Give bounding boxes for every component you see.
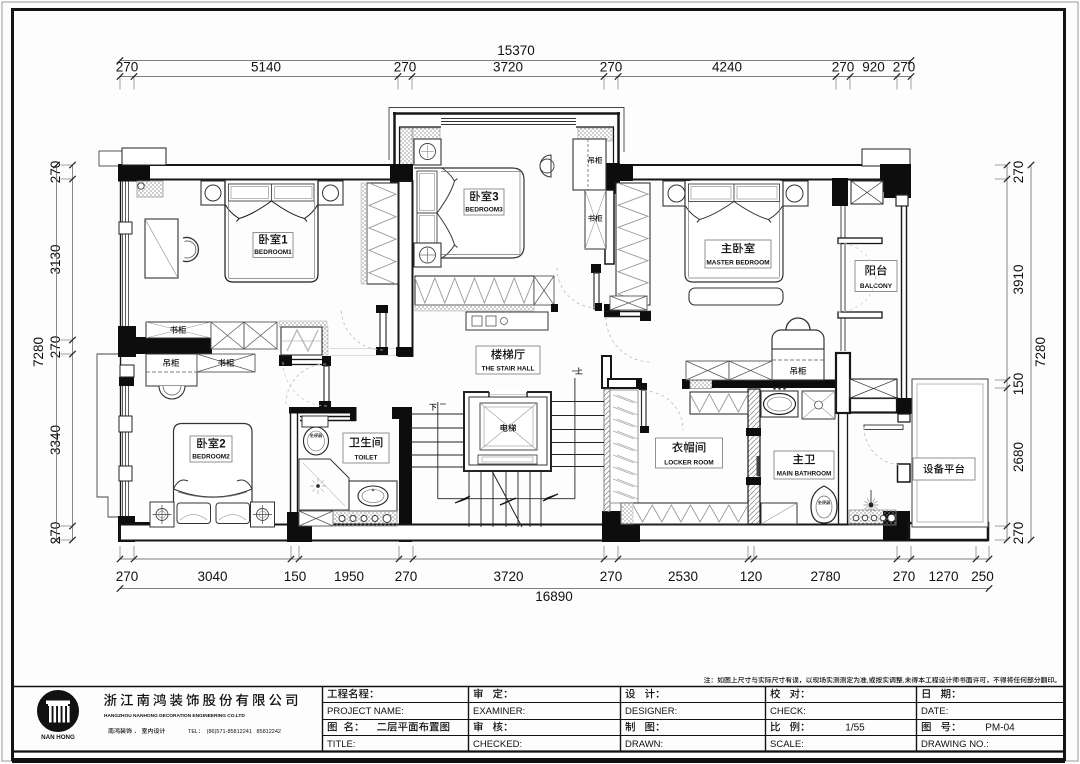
svg-text:150: 150 (1011, 373, 1026, 396)
svg-text:3910: 3910 (1011, 264, 1026, 294)
svg-text:TEL: TEL (188, 729, 198, 735)
svg-text:270: 270 (600, 60, 623, 75)
svg-text:250: 250 (971, 569, 994, 584)
svg-text:7280: 7280 (1033, 337, 1048, 367)
svg-text:270: 270 (893, 60, 916, 75)
svg-text:270: 270 (600, 569, 623, 584)
svg-text:270: 270 (1011, 522, 1026, 545)
svg-text:1950: 1950 (334, 569, 364, 584)
svg-text:270: 270 (116, 569, 139, 584)
svg-text:1/55: 1/55 (845, 723, 865, 734)
svg-text:LOCKER ROOM: LOCKER ROOM (664, 460, 713, 467)
svg-text:CHECKED:: CHECKED: (473, 739, 522, 750)
svg-text:DESIGNER:: DESIGNER: (625, 706, 677, 717)
svg-text:PM-04: PM-04 (985, 723, 1015, 734)
svg-text:270: 270 (48, 161, 63, 184)
svg-text:EXAMINER:: EXAMINER: (473, 706, 525, 717)
svg-text:270: 270 (394, 60, 417, 75)
svg-text:920: 920 (862, 60, 885, 75)
svg-text:120: 120 (740, 569, 763, 584)
svg-text:3720: 3720 (493, 569, 523, 584)
svg-text:270: 270 (395, 569, 418, 584)
svg-text:THE STAIR HALL: THE STAIR HALL (482, 366, 535, 373)
svg-text:3340: 3340 (48, 425, 63, 455)
svg-text:270: 270 (1011, 161, 1026, 184)
svg-text:2530: 2530 (668, 569, 698, 584)
svg-text:NAN HONG: NAN HONG (41, 734, 75, 741)
svg-text:DRAWING NO.:: DRAWING NO.: (921, 739, 989, 750)
svg-text:BALCONY: BALCONY (860, 283, 893, 290)
svg-text:2680: 2680 (1011, 442, 1026, 472)
svg-text:270: 270 (48, 336, 63, 359)
svg-text:1: 1 (281, 235, 288, 247)
svg-text:BEDROOM2: BEDROOM2 (192, 454, 230, 461)
svg-text:4240: 4240 (712, 60, 742, 75)
svg-text:BEDROOM3: BEDROOM3 (465, 207, 503, 214)
svg-text:DATE:: DATE: (921, 706, 948, 717)
svg-text:7280: 7280 (31, 337, 46, 367)
svg-text:(86)571-85812241 85812242: (86)571-85812241 85812242 (204, 729, 281, 735)
svg-text:3040: 3040 (197, 569, 227, 584)
svg-text:TITLE:: TITLE: (327, 739, 356, 750)
svg-text:270: 270 (116, 60, 139, 75)
svg-text:2: 2 (219, 439, 225, 451)
svg-text:270: 270 (893, 569, 916, 584)
svg-text:150: 150 (284, 569, 307, 584)
svg-text:CHECK:: CHECK: (770, 706, 806, 717)
svg-text:15370: 15370 (497, 43, 535, 58)
svg-text:MASTER BEDROOM: MASTER BEDROOM (706, 260, 769, 267)
svg-text:TOILET: TOILET (355, 455, 378, 462)
svg-text:3130: 3130 (48, 244, 63, 274)
svg-text:5140: 5140 (251, 60, 281, 75)
svg-text:,: , (867, 678, 869, 685)
svg-text:HANGZHOU NANHONG DECORATION: HANGZHOU NANHONG DECORATION ENGINEERING … (104, 713, 245, 719)
svg-text:1270: 1270 (928, 569, 958, 584)
svg-text:MAIN BATHROOM: MAIN BATHROOM (777, 471, 831, 478)
svg-text:2780: 2780 (810, 569, 840, 584)
svg-text:3720: 3720 (493, 60, 523, 75)
svg-text:DRAWN:: DRAWN: (625, 739, 663, 750)
svg-text:,: , (903, 678, 905, 685)
svg-text:270: 270 (832, 60, 855, 75)
svg-text:SCALE:: SCALE: (770, 739, 804, 750)
svg-text:16890: 16890 (535, 589, 573, 604)
svg-text:BEDROOM1: BEDROOM1 (254, 249, 292, 256)
svg-text:PROJECT NAME:: PROJECT NAME: (327, 706, 404, 717)
svg-text:3: 3 (492, 192, 498, 204)
